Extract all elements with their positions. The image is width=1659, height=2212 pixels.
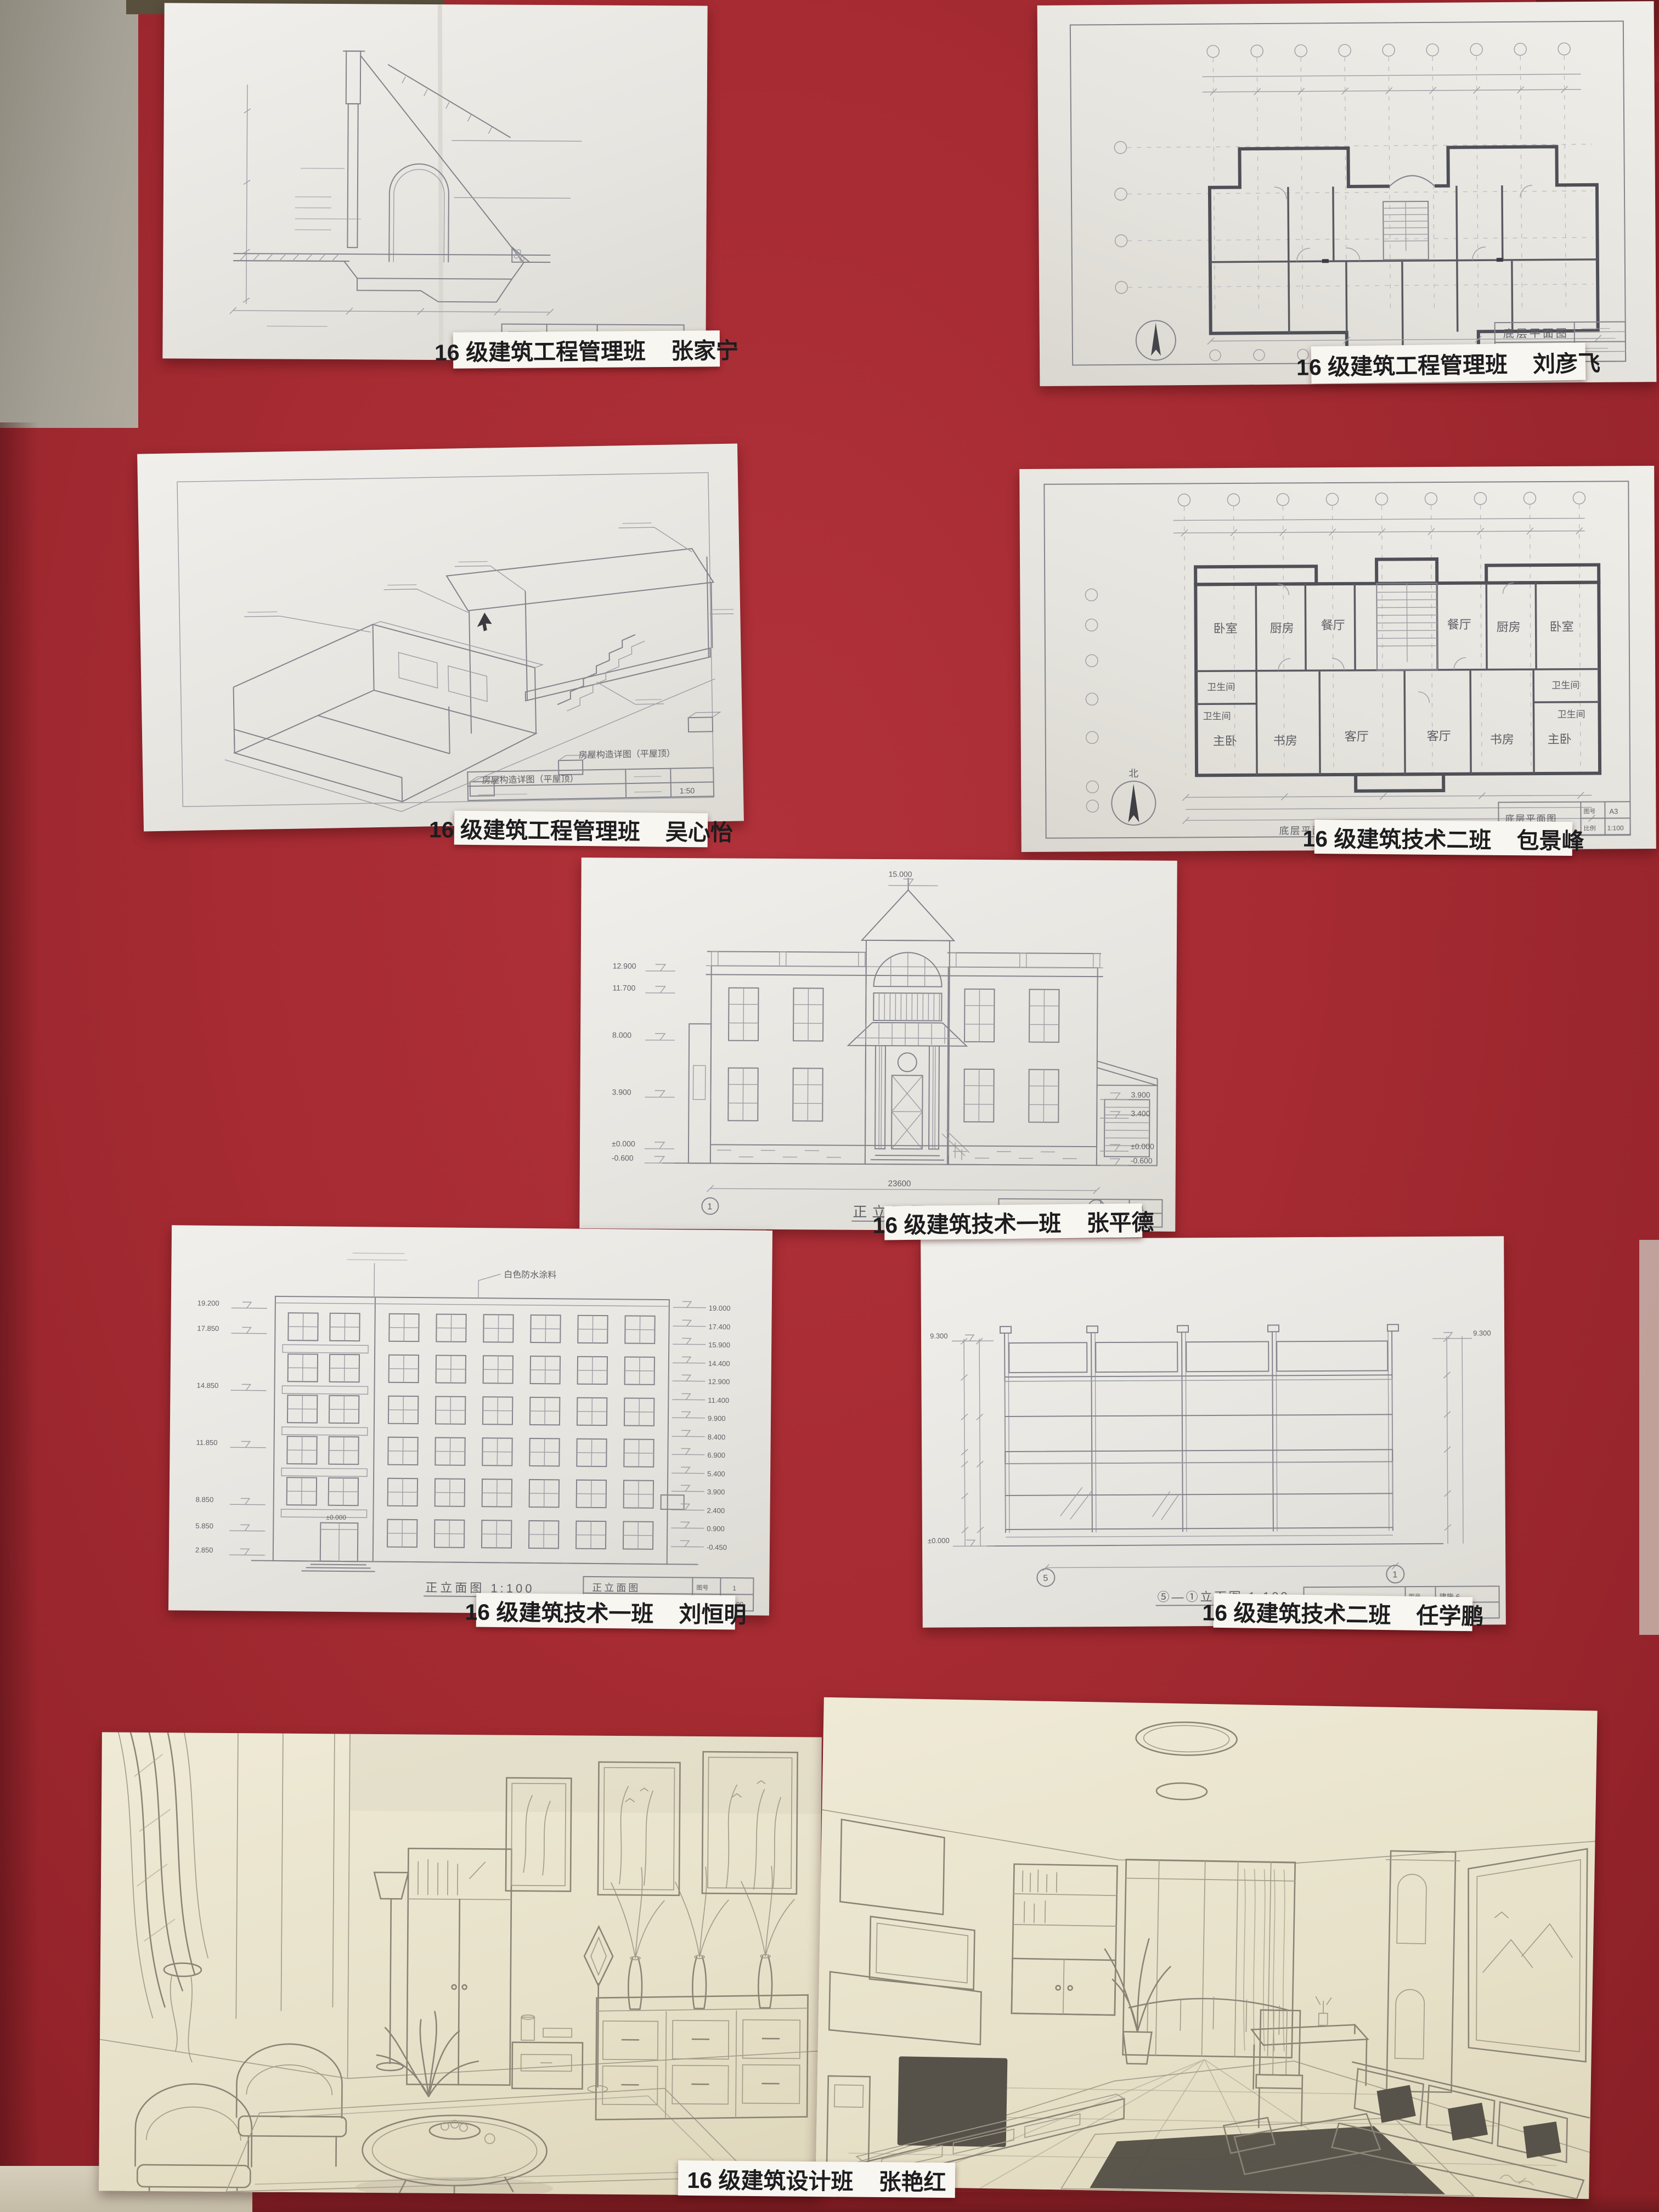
svg-text:-0.600: -0.600: [1131, 1156, 1153, 1165]
axono-caption-text: 房屋构造详图（平屋顶）: [579, 749, 675, 760]
student-name-text: 张艳红: [878, 2163, 946, 2197]
svg-text:14.400: 14.400: [708, 1359, 730, 1368]
left-edge-shadow: [0, 422, 38, 2172]
svg-text:3.900: 3.900: [707, 1488, 725, 1496]
sixstory-levels-right: 19.000 17.400 15.900 14.400 12.900 11.40…: [671, 1301, 731, 1551]
svg-text:0.900: 0.900: [707, 1525, 725, 1533]
room-label: 书房: [1273, 733, 1297, 747]
villa-levels-left: 12.900 11.700 8.000 3.900 ±0.000 -0.600: [612, 961, 675, 1163]
wall-top-left: [0, 0, 138, 428]
room-label: 主卧: [1213, 734, 1237, 748]
student-name-text: 张家宁: [671, 332, 738, 365]
class-name-text: 16 级建筑设计班: [687, 2162, 854, 2196]
room-label: 卫生间: [1551, 680, 1579, 691]
svg-text:11.850: 11.850: [196, 1438, 218, 1447]
room-label: 餐厅: [1447, 618, 1471, 631]
label-strip-baojingfeng: 16 级建筑技术二班 包景峰: [1314, 820, 1573, 856]
level-top-right: 9.300: [1473, 1329, 1491, 1337]
sheet-no-label: 图号: [1583, 808, 1595, 815]
room-label: 客厅: [1345, 730, 1369, 743]
room-label: 卧室: [1550, 620, 1574, 634]
student-name-text: 包景峰: [1516, 822, 1584, 855]
section-detail-drawing: [162, 3, 707, 361]
villa-total-dim: 23600: [888, 1179, 911, 1188]
room-label: 卫生间: [1557, 709, 1585, 720]
class-name-text: 16 级建筑工程管理班: [435, 332, 646, 367]
scale-label: 比例: [1584, 825, 1596, 832]
svg-text:8.400: 8.400: [708, 1433, 726, 1441]
student-name-text: 刘彦飞: [1533, 345, 1601, 379]
zero-level: ±0.000: [326, 1514, 346, 1521]
svg-text:17.850: 17.850: [197, 1324, 219, 1333]
sheet-interior-sketch-right: [815, 1697, 1597, 2199]
label-strip-renxuepeng: 16 级建筑技术二班 任学鹏: [1214, 1594, 1473, 1632]
student-name-text: 刘恒明: [679, 1595, 747, 1629]
room-label: 厨房: [1270, 621, 1294, 635]
axono-scale-text: 1:50: [680, 786, 695, 795]
room-label: 卫生间: [1203, 711, 1231, 721]
svg-text:±0.000: ±0.000: [1131, 1142, 1154, 1150]
svg-text:19.000: 19.000: [709, 1304, 731, 1312]
room-label: 卫生间: [1207, 682, 1235, 692]
svg-text:15.900: 15.900: [708, 1341, 730, 1349]
villa-top-level: 15.000: [889, 870, 912, 878]
room-label: 卧室: [1214, 622, 1238, 635]
plan-title-text: 底层平面图: [1503, 327, 1569, 340]
sheet-sixstory-elevation: ±0.000 白色防水涂料 19.200 17.850 14.850 11.85…: [168, 1225, 772, 1616]
elevation-note: 白色防水涂料: [504, 1270, 556, 1280]
sheet-floor-plan-liu: 底层平面图: [1037, 1, 1657, 386]
label-strip-wuxinyi: 16 级建筑工程管理班 吴心怡: [454, 811, 708, 848]
label-strip-zhangjianing: 16 级建筑工程管理班 张家宁: [453, 330, 720, 368]
sheet-section-drawing: [162, 3, 707, 361]
svg-text:3.400: 3.400: [1131, 1109, 1150, 1118]
room-label: 厨房: [1497, 620, 1521, 634]
svg-text:6.900: 6.900: [707, 1451, 725, 1459]
interior-sketch-left: [99, 1732, 822, 2196]
storefront-elevation-drawing: 9.300 ±0.000 9.300 5 1 ⑤—①立面图 1:100 ⑤—①立…: [921, 1236, 1506, 1628]
room-label: 餐厅: [1321, 618, 1345, 632]
svg-text:±0.000: ±0.000: [612, 1139, 635, 1148]
class-name-text: 16 级建筑工程管理班: [429, 811, 641, 846]
svg-text:9.900: 9.900: [708, 1414, 726, 1423]
room-label: 主卧: [1548, 732, 1572, 746]
axono-titleblock-text: 房屋构造详图（平屋顶）: [482, 774, 578, 786]
svg-text:14.850: 14.850: [196, 1381, 218, 1390]
class-name-text: 16 级建筑技术二班: [1202, 1594, 1391, 1629]
level-top-left: 9.300: [930, 1332, 948, 1340]
svg-text:11.700: 11.700: [612, 983, 635, 992]
svg-text:11.400: 11.400: [708, 1396, 729, 1404]
sheet-interior-sketch-left: [99, 1732, 822, 2196]
sixstory-elevation-drawing: ±0.000 白色防水涂料 19.200 17.850 14.850 11.85…: [168, 1225, 772, 1616]
svg-text:1: 1: [732, 1584, 736, 1592]
floor-plan-drawing-liu: 底层平面图: [1037, 1, 1657, 386]
svg-text:8.850: 8.850: [196, 1496, 214, 1504]
scale-value: 1:100: [1607, 824, 1624, 832]
sixstory-levels-left: 19.200 17.850 14.850 11.850 8.850 5.850 …: [195, 1299, 267, 1555]
sheet-villa-elevation: 12.900 11.700 8.000 3.900 ±0.000 -0.600 …: [579, 857, 1177, 1232]
label-strip-zhangyanhong: 16 级建筑设计班 张艳红: [678, 2160, 956, 2198]
svg-text:12.900: 12.900: [613, 961, 636, 970]
north-label: 北: [1128, 768, 1138, 779]
student-name-text: 张平德: [1086, 1204, 1154, 1237]
svg-text:5.400: 5.400: [707, 1470, 725, 1478]
interior-sketch-right: [815, 1697, 1597, 2199]
level-zero-left: ±0.000: [928, 1537, 950, 1545]
right-wall-sliver: [1639, 1240, 1659, 1635]
svg-text:3.900: 3.900: [1131, 1090, 1150, 1099]
sheet-axonometric: 房屋构造详图（平屋顶） 房屋构造详图（平屋顶） 1:50: [137, 444, 744, 832]
villa-elevation-drawing: 12.900 11.700 8.000 3.900 ±0.000 -0.600 …: [579, 857, 1177, 1232]
axonometric-drawing: 房屋构造详图（平屋顶） 房屋构造详图（平屋顶） 1:50: [137, 444, 744, 832]
class-name-text: 16 级建筑工程管理班: [1296, 346, 1508, 381]
svg-text:19.200: 19.200: [198, 1299, 219, 1307]
sheet-floor-plan-bao: 卧室 厨房 餐厅 餐厅 厨房 卧室 卫生间 卫生间 卫生间 卫生间 主卧 书房 …: [1019, 466, 1656, 852]
villa-levels-right: 3.900 3.400 ±0.000 -0.600: [1100, 1090, 1155, 1166]
svg-text:3.900: 3.900: [612, 1087, 631, 1096]
class-name-text: 16 级建筑技术一班: [872, 1205, 1062, 1240]
student-name-text: 吴心怡: [665, 814, 733, 847]
svg-text:2.850: 2.850: [195, 1546, 213, 1554]
svg-text:-0.450: -0.450: [707, 1543, 727, 1551]
axis-bubble: 5: [1043, 1574, 1048, 1583]
svg-text:8.000: 8.000: [612, 1030, 631, 1039]
room-label: 客厅: [1427, 729, 1451, 743]
sheet-no: A3: [1609, 807, 1618, 815]
svg-text:12.900: 12.900: [708, 1378, 730, 1386]
sixstory-titleblock: 正立面图: [592, 1582, 640, 1594]
class-name-text: 16 级建筑技术二班: [1302, 820, 1492, 855]
svg-text:5.850: 5.850: [195, 1522, 213, 1530]
class-name-text: 16 级建筑技术一班: [465, 1593, 654, 1628]
room-label: 书房: [1490, 732, 1514, 746]
student-name-text: 任学鹏: [1416, 1597, 1484, 1631]
axis-bubble: 1: [707, 1202, 712, 1211]
svg-text:图号: 图号: [696, 1584, 708, 1592]
svg-text:17.400: 17.400: [708, 1323, 730, 1331]
label-strip-liuhengming: 16 级建筑技术一班 刘恒明: [476, 1593, 736, 1630]
label-strip-liuyanfei: 16 级建筑工程管理班 刘彦飞: [1311, 343, 1586, 384]
svg-text:-0.600: -0.600: [612, 1153, 634, 1162]
axis-bubble: 1: [1392, 1570, 1397, 1579]
floor-plan-drawing-bao: 卧室 厨房 餐厅 餐厅 厨房 卧室 卫生间 卫生间 卫生间 卫生间 主卧 书房 …: [1019, 466, 1656, 852]
svg-text:2.400: 2.400: [707, 1506, 725, 1515]
label-strip-zhangpingde: 16 级建筑技术一班 张平德: [884, 1204, 1143, 1240]
sheet-storefront-elevation: 9.300 ±0.000 9.300 5 1 ⑤—①立面图 1:100 ⑤—①立…: [921, 1236, 1506, 1628]
